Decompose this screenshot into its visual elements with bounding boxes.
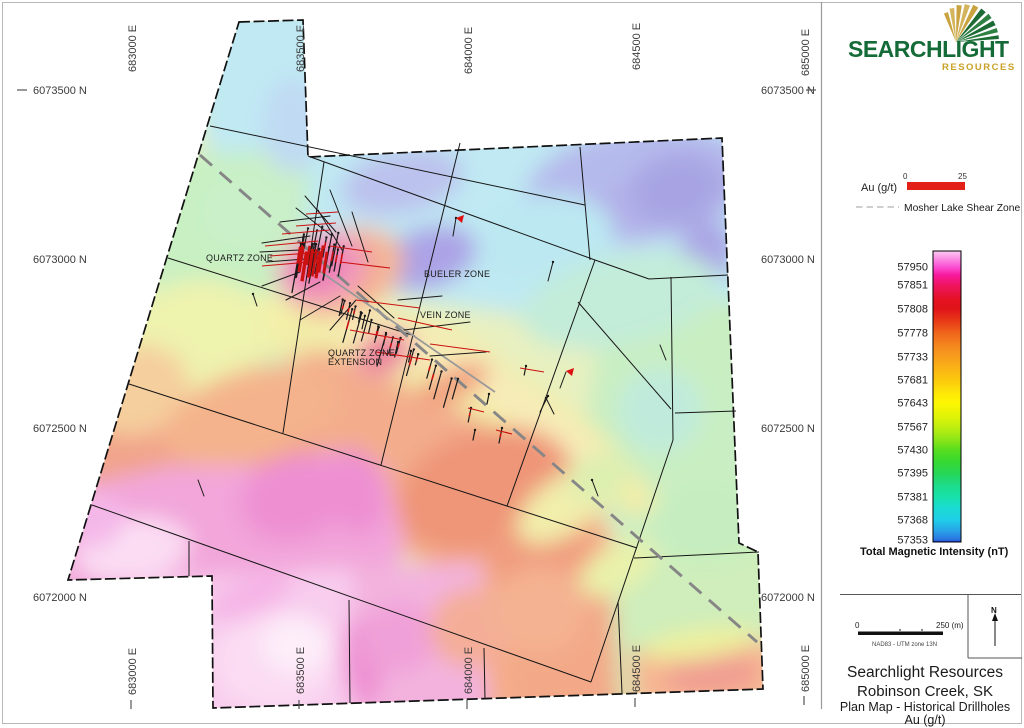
- svg-text:6072500 N: 6072500 N: [761, 423, 815, 435]
- svg-text:6073500 N: 6073500 N: [33, 85, 87, 97]
- svg-text:Total Magnetic Intensity (nT): Total Magnetic Intensity (nT): [860, 546, 1009, 558]
- svg-text:6072000 N: 6072000 N: [761, 592, 815, 604]
- svg-text:57430: 57430: [897, 445, 928, 457]
- svg-text:BUELER ZONE: BUELER ZONE: [424, 269, 490, 279]
- svg-text:57567: 57567: [897, 422, 928, 434]
- svg-text:683500 E: 683500 E: [295, 25, 307, 72]
- svg-text:57778: 57778: [897, 328, 928, 340]
- svg-text:57395: 57395: [897, 468, 928, 480]
- svg-text:57733: 57733: [897, 352, 928, 364]
- svg-text:Au (g/t): Au (g/t): [905, 713, 946, 727]
- svg-text:684000 E: 684000 E: [463, 27, 475, 74]
- svg-text:25: 25: [958, 172, 967, 181]
- svg-text:RESOURCES: RESOURCES: [942, 62, 1016, 73]
- svg-text:6073500 N: 6073500 N: [761, 85, 815, 97]
- svg-text:6072500 N: 6072500 N: [33, 423, 87, 435]
- svg-text:QUARTZ ZONE: QUARTZ ZONE: [206, 253, 273, 263]
- svg-text:685000 E: 685000 E: [800, 29, 812, 76]
- svg-text:Plan Map - Historical Drillhol: Plan Map - Historical Drillholes: [840, 700, 1010, 714]
- svg-text:6072000 N: 6072000 N: [33, 592, 87, 604]
- svg-text:EXTENSION: EXTENSION: [328, 357, 382, 367]
- svg-text:Searchlight Resources: Searchlight Resources: [847, 664, 1003, 681]
- svg-text:Mosher Lake Shear Zone: Mosher Lake Shear Zone: [904, 203, 1020, 214]
- svg-text:N: N: [991, 606, 997, 615]
- svg-text:57368: 57368: [897, 515, 928, 527]
- svg-text:683500 E: 683500 E: [295, 647, 307, 694]
- svg-text:57643: 57643: [897, 398, 928, 410]
- svg-text:250 (m): 250 (m): [936, 621, 964, 630]
- svg-text:683000 E: 683000 E: [127, 648, 139, 695]
- svg-text:57681: 57681: [897, 375, 928, 387]
- svg-text:57381: 57381: [897, 492, 928, 504]
- svg-text:57808: 57808: [897, 304, 928, 316]
- svg-text:6073000 N: 6073000 N: [33, 254, 87, 266]
- svg-text:Au (g/t): Au (g/t): [861, 182, 897, 194]
- svg-text:57950: 57950: [897, 262, 928, 274]
- svg-text:VEIN ZONE: VEIN ZONE: [420, 310, 471, 320]
- svg-text:NAD83 - UTM zone 13N: NAD83 - UTM zone 13N: [872, 642, 937, 648]
- svg-text:Robinson Creek, SK: Robinson Creek, SK: [857, 683, 993, 700]
- svg-text:57353: 57353: [897, 535, 928, 547]
- svg-text:684500 E: 684500 E: [631, 645, 643, 692]
- svg-text:684500 E: 684500 E: [631, 23, 643, 70]
- svg-text:6073000 N: 6073000 N: [761, 254, 815, 266]
- svg-text:0: 0: [903, 172, 908, 181]
- svg-text:683000 E: 683000 E: [127, 25, 139, 72]
- svg-text:685000 E: 685000 E: [800, 645, 812, 692]
- svg-text:57851: 57851: [897, 280, 928, 292]
- svg-text:SEARCHLIGHT: SEARCHLIGHT: [848, 36, 1009, 62]
- svg-text:684000 E: 684000 E: [463, 647, 475, 694]
- svg-text:0: 0: [855, 621, 860, 630]
